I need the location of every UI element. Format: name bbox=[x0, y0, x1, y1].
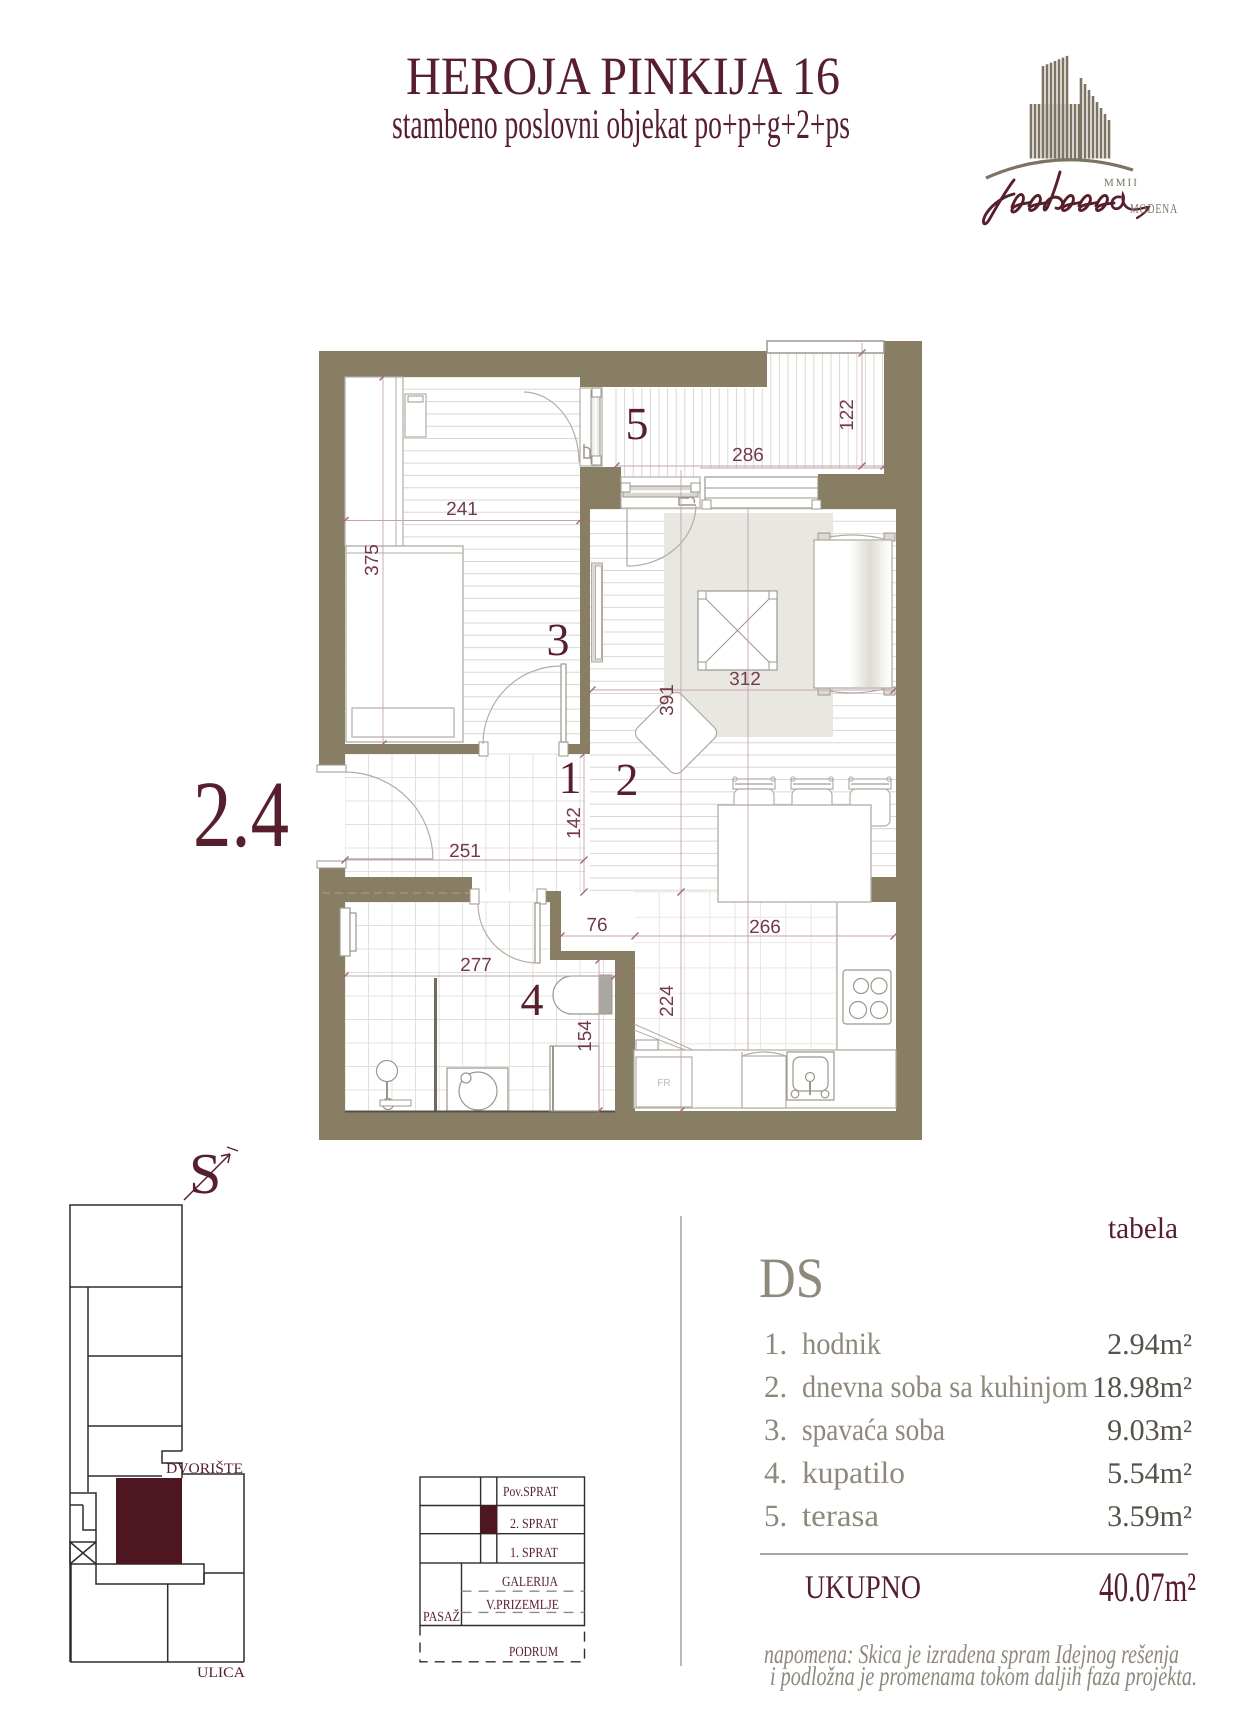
svg-text:GALERIJA: GALERIJA bbox=[502, 1575, 559, 1590]
svg-text:hodnik: hodnik bbox=[802, 1326, 881, 1361]
svg-text:241: 241 bbox=[446, 499, 478, 520]
svg-text:terasa: terasa bbox=[802, 1498, 879, 1533]
svg-text:277: 277 bbox=[460, 955, 492, 976]
svg-text:40.07m²: 40.07m² bbox=[1099, 1565, 1196, 1611]
svg-text:266: 266 bbox=[749, 917, 781, 938]
svg-text:224: 224 bbox=[657, 985, 678, 1017]
svg-text:tabela: tabela bbox=[1108, 1212, 1178, 1245]
svg-text:kupatilo: kupatilo bbox=[802, 1455, 905, 1490]
svg-text:9.03m²: 9.03m² bbox=[1107, 1414, 1192, 1447]
svg-text:3: 3 bbox=[547, 614, 570, 665]
svg-text:122: 122 bbox=[837, 399, 858, 431]
svg-text:142: 142 bbox=[564, 807, 585, 839]
svg-text:286: 286 bbox=[732, 445, 764, 466]
svg-text:PASAŽ: PASAŽ bbox=[423, 1608, 460, 1625]
svg-text:DS: DS bbox=[759, 1247, 824, 1310]
svg-text:391: 391 bbox=[657, 684, 678, 716]
svg-text:stambeno poslovni objekat po+p: stambeno poslovni objekat po+p+g+2+ps bbox=[392, 102, 850, 148]
svg-text:spavaća soba: spavaća soba bbox=[802, 1412, 945, 1447]
svg-text:1. SPRAT: 1. SPRAT bbox=[510, 1546, 558, 1561]
svg-text:HEROJA PINKIJA 16: HEROJA PINKIJA 16 bbox=[406, 46, 840, 106]
svg-text:2: 2 bbox=[616, 754, 639, 805]
svg-text:2.4: 2.4 bbox=[193, 761, 289, 867]
svg-text:154: 154 bbox=[575, 1020, 596, 1052]
svg-text:S: S bbox=[189, 1141, 221, 1206]
svg-text:dnevna soba sa kuhinjom: dnevna soba sa kuhinjom bbox=[802, 1369, 1088, 1404]
svg-text:MODENA: MODENA bbox=[1130, 201, 1178, 216]
svg-text:V.PRIZEMLJE: V.PRIZEMLJE bbox=[486, 1598, 559, 1613]
svg-text:312: 312 bbox=[729, 669, 761, 690]
svg-text:UKUPNO: UKUPNO bbox=[805, 1570, 921, 1606]
svg-text:5: 5 bbox=[626, 398, 649, 449]
svg-text:5.: 5. bbox=[764, 1498, 787, 1533]
svg-text:4: 4 bbox=[521, 974, 544, 1025]
svg-text:375: 375 bbox=[362, 544, 383, 576]
svg-text:DVORIŠTE: DVORIŠTE bbox=[166, 1460, 243, 1477]
svg-text:MMII: MMII bbox=[1104, 177, 1139, 189]
svg-text:i podložna je promenama tokom: i podložna je promenama tokom daljih faz… bbox=[770, 1661, 1197, 1691]
svg-text:1: 1 bbox=[559, 752, 582, 803]
svg-text:18.98m²: 18.98m² bbox=[1092, 1371, 1192, 1404]
svg-text:251: 251 bbox=[449, 841, 481, 862]
svg-text:2.: 2. bbox=[764, 1369, 787, 1404]
svg-text:4.: 4. bbox=[764, 1455, 787, 1490]
svg-text:Pov.SPRAT: Pov.SPRAT bbox=[503, 1485, 558, 1500]
svg-text:FR: FR bbox=[657, 1078, 670, 1089]
svg-text:PODRUM: PODRUM bbox=[509, 1645, 558, 1660]
svg-text:3.: 3. bbox=[764, 1412, 787, 1447]
svg-text:2. SPRAT: 2. SPRAT bbox=[510, 1517, 558, 1532]
svg-text:1.: 1. bbox=[764, 1326, 787, 1361]
svg-text:3.59m²: 3.59m² bbox=[1107, 1500, 1192, 1533]
svg-text:ULICA: ULICA bbox=[197, 1665, 246, 1681]
svg-text:5.54m²: 5.54m² bbox=[1107, 1457, 1192, 1490]
svg-text:2.94m²: 2.94m² bbox=[1107, 1328, 1192, 1361]
svg-text:76: 76 bbox=[586, 915, 607, 936]
